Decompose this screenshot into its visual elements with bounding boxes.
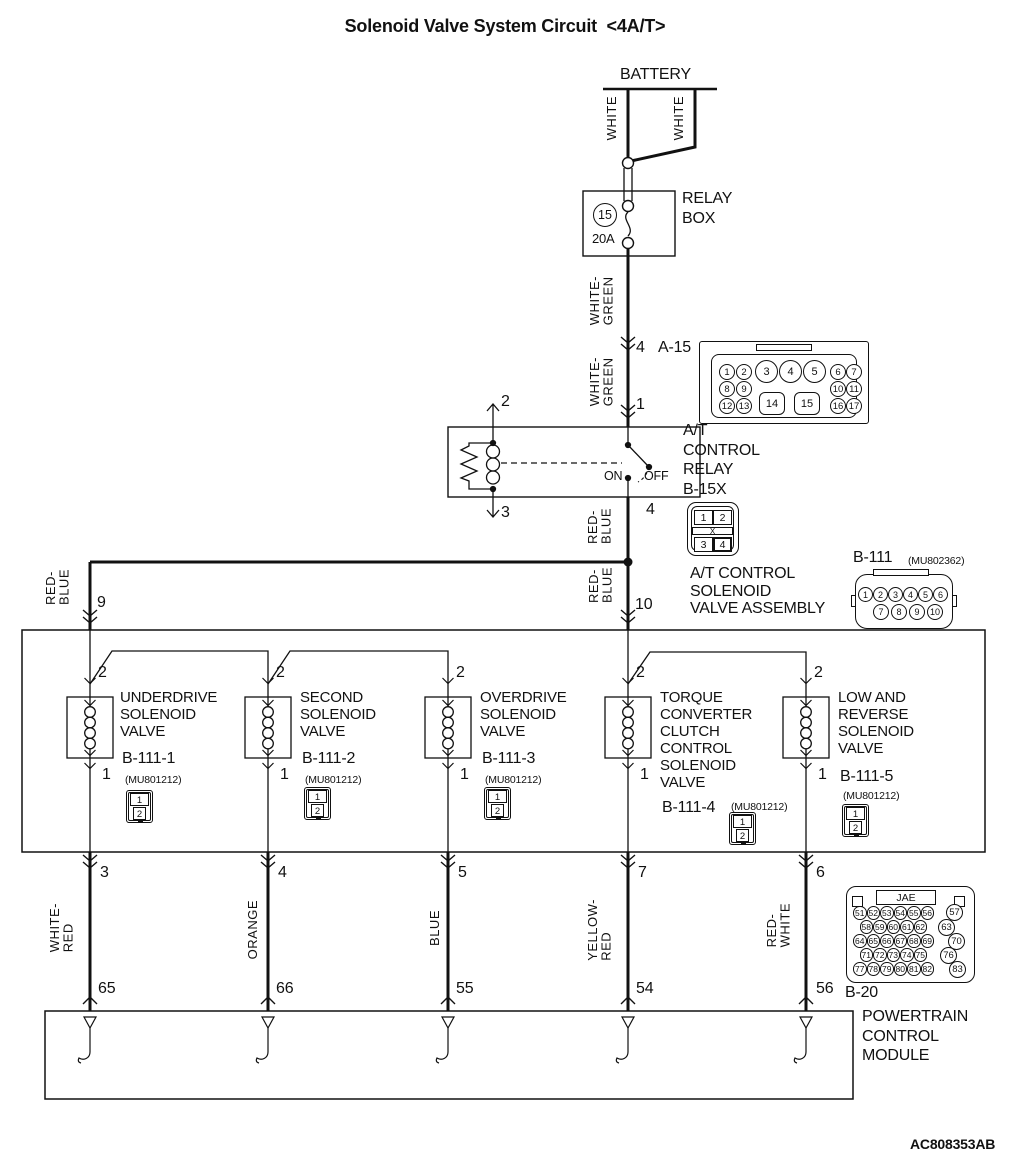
pin-number: 13 — [736, 398, 752, 414]
valve-name-second: SECOND SOLENOID VALVE — [300, 689, 376, 740]
pin-label: 1 — [818, 766, 827, 784]
pin-label: 5 — [458, 864, 467, 882]
pin-number: 10 — [927, 604, 943, 620]
pin-number: 72 — [873, 948, 887, 962]
fuse-rating: 20A — [592, 231, 615, 246]
at-relay-label: A/T CONTROL RELAY B-15X — [683, 421, 760, 499]
pin-number: 52 — [867, 906, 881, 920]
relay-on-label: ON — [604, 469, 622, 483]
at-control-relay-graphic — [448, 404, 700, 517]
pin-number: 5 — [918, 587, 933, 602]
pin-number: 1 — [858, 587, 873, 602]
pcm-graphic — [45, 1011, 853, 1099]
battery-wires — [603, 89, 717, 161]
pin-number: 4 — [779, 360, 802, 383]
valve-name-low-reverse: LOW AND REVERSE SOLENOID VALVE — [838, 689, 914, 757]
pin-label: 3 — [100, 864, 109, 882]
doc-code: AC808353AB — [910, 1136, 995, 1153]
valve-code: B-111-4 — [662, 799, 715, 817]
valve-part-number: (MU801212) — [125, 774, 181, 786]
valve-part-number: (MU801212) — [485, 774, 541, 786]
wire-color-label-red-white: RED- WHITE — [765, 903, 792, 947]
valve-name-underdrive: UNDERDRIVE SOLENOID VALVE — [120, 689, 217, 740]
wire-color-label-red-blue-2: RED- BLUE — [587, 567, 614, 603]
pin-label: 2 — [814, 664, 823, 682]
pin-number: 74 — [900, 948, 914, 962]
pin-number: 53 — [880, 906, 894, 920]
pin-number: 11 — [846, 381, 862, 397]
pin-number: 6 — [830, 364, 846, 380]
pin-number: 51 — [853, 906, 867, 920]
valve-code: B-111-2 — [302, 750, 355, 768]
pin-label-relay-coil-bottom: 3 — [501, 504, 510, 522]
pin-number: 58 — [860, 920, 874, 934]
pin-label: 2 — [456, 664, 465, 682]
pin-number: 64 — [853, 934, 867, 948]
valve-mini-connector: 1 2 — [304, 787, 331, 820]
pin-label-relay-in: 1 — [636, 396, 645, 414]
pin-number: 5 — [803, 360, 826, 383]
wire-color-label-blue: BLUE — [428, 910, 442, 946]
pin-number: 1 — [733, 815, 752, 828]
relay-box-label: RELAY BOX — [682, 189, 732, 228]
wire-color-label-orange: ORANGE — [246, 900, 260, 959]
pin-number: 2 — [133, 807, 146, 820]
a15-connector: 1 2 3 4 5 6 7 8 9 10 11 12 13 14 15 16 1… — [699, 341, 869, 424]
pin-label-assembly-left: 9 — [97, 594, 106, 612]
pin-number: 1 — [308, 790, 327, 803]
pin-number: 2 — [311, 804, 324, 817]
wire-color-label-white-right: WHITE — [672, 96, 686, 140]
mini-tick — [854, 834, 859, 837]
valve-mini-connector: 1 2 — [729, 812, 756, 845]
connector-name-a15: A-15 — [658, 339, 691, 357]
pin-label-relay-out: 4 — [646, 501, 655, 519]
pin-number: 83 — [949, 961, 966, 978]
pin-number: 77 — [853, 962, 867, 976]
pin-number: 69 — [921, 934, 935, 948]
pin-number: 1 — [488, 790, 507, 803]
pin-number: 4 — [903, 587, 918, 602]
pin-label: 2 — [636, 664, 645, 682]
pin-number: 67 — [894, 934, 908, 948]
pin-number: 71 — [860, 948, 874, 962]
b111-nub-right — [952, 595, 957, 607]
mini-tick — [138, 820, 143, 823]
pin-number: 7 — [846, 364, 862, 380]
pin-number: 9 — [909, 604, 925, 620]
relay-off-label: OFF — [644, 469, 668, 483]
pin-number: 60 — [887, 920, 901, 934]
pin-label: 56 — [816, 980, 833, 998]
mini-tick — [316, 817, 321, 820]
pin-label: 1 — [640, 766, 649, 784]
battery-label: BATTERY — [620, 66, 691, 84]
b20-pin-row: 7172737475 — [860, 948, 928, 962]
connector-name-b20: B-20 — [845, 984, 878, 1002]
valve-code: B-111-1 — [122, 750, 175, 768]
connector-name-b111: B-111 — [853, 549, 892, 567]
pin-number: 82 — [921, 962, 935, 976]
valve-code: B-111-5 — [840, 768, 893, 786]
pin-number: 81 — [907, 962, 921, 976]
pin-label: 2 — [276, 664, 285, 682]
pin-number: 14 — [759, 392, 785, 415]
pin-number: 1 — [719, 364, 735, 380]
valve-mini-connector: 1 2 — [126, 790, 153, 823]
pin-number: 3 — [694, 537, 713, 552]
b20-pin-row: 515253545556 — [853, 906, 934, 920]
pin-number: 8 — [719, 381, 735, 397]
pin-number: 2 — [736, 829, 749, 842]
wire-color-label-white-left: WHITE — [605, 96, 619, 140]
output-wires — [90, 852, 806, 1011]
pin-number: 6 — [933, 587, 948, 602]
wire-color-label-white-green-2: WHITE- GREEN — [588, 357, 615, 406]
red-blue-wires — [90, 497, 633, 630]
pin-number: 68 — [907, 934, 921, 948]
pin-number: 7 — [873, 604, 889, 620]
pin-label: 55 — [456, 980, 473, 998]
pin-label-assembly-right: 10 — [635, 596, 652, 614]
pin-label: 1 — [460, 766, 469, 784]
b20-connector: JAE 515253545556 5859606162 646566676869… — [846, 886, 975, 983]
b20-pin-row: 5859606162 — [860, 920, 928, 934]
pin-number: 8 — [891, 604, 907, 620]
b20-pin-row: 777879808182 — [853, 962, 934, 976]
pin-number: 54 — [894, 906, 908, 920]
valve-mini-connector: 1 2 — [842, 804, 869, 837]
pin-number: 79 — [880, 962, 894, 976]
pin-number: 62 — [914, 920, 928, 934]
pin-number: 66 — [880, 934, 894, 948]
pin-number: 55 — [907, 906, 921, 920]
valve-mini-connector: 1 2 — [484, 787, 511, 820]
b111-nub-left — [851, 595, 856, 607]
wire-color-label-red-blue-1: RED- BLUE — [586, 508, 613, 544]
pin-label-a15-wire: 4 — [636, 339, 645, 357]
pin-number: 1 — [694, 510, 713, 525]
valve-code: B-111-3 — [482, 750, 535, 768]
pin-label: 4 — [278, 864, 287, 882]
b111-connector: 1 2 3 4 5 6 7 8 9 10 — [855, 574, 953, 629]
pin-number: 3 — [888, 587, 903, 602]
pin-label: 7 — [638, 864, 647, 882]
pin-number: 2 — [736, 364, 752, 380]
pin-number: 16 — [830, 398, 846, 414]
wire-color-label-yellow-red: YELLOW- RED — [586, 899, 613, 961]
pin-number: 2 — [873, 587, 888, 602]
pin-number: 17 — [846, 398, 862, 414]
pin-number: 75 — [914, 948, 928, 962]
valve-name-tcc: TORQUE CONVERTER CLUTCH CONTROL SOLENOID… — [660, 689, 752, 791]
pin-number: 3 — [755, 360, 778, 383]
pin-label: 66 — [276, 980, 293, 998]
pin-label: 1 — [280, 766, 289, 784]
pin-number: 10 — [830, 381, 846, 397]
pin-number: 59 — [873, 920, 887, 934]
pin-number: 2 — [849, 821, 862, 834]
wiring-diagram-page: Solenoid Valve System Circuit <4A/T> AC8… — [0, 0, 1010, 1168]
pin-label: 2 — [98, 664, 107, 682]
pin-label: 54 — [636, 980, 653, 998]
pin-number: 1 — [846, 807, 865, 820]
pin-number: 2 — [491, 804, 504, 817]
pin-number: 78 — [867, 962, 881, 976]
pin-number: 12 — [719, 398, 735, 414]
mini-tick — [741, 842, 746, 845]
b111-tab — [873, 569, 929, 576]
pin-number: 80 — [894, 962, 908, 976]
pin-number: 15 — [794, 392, 820, 415]
mini-tick — [496, 817, 501, 820]
pin-number: 2 — [713, 510, 732, 525]
pin-number: 1 — [130, 793, 149, 806]
pin-label: 1 — [102, 766, 111, 784]
valve-name-overdrive: OVERDRIVE SOLENOID VALVE — [480, 689, 567, 740]
valve-part-number: (MU801212) — [843, 790, 899, 802]
wire-color-label-red-blue-3: RED- BLUE — [44, 569, 71, 605]
b15x-center-key: X — [692, 527, 733, 535]
a15-tab — [756, 344, 812, 351]
pin-number: 9 — [736, 381, 752, 397]
wire-color-label-white-green-1: WHITE- GREEN — [588, 276, 615, 325]
pin-number: 61 — [900, 920, 914, 934]
b15x-connector: 1 2 X 3 4 — [687, 502, 739, 556]
b20-pin-row: 646566676869 — [853, 934, 934, 948]
pin-label: 6 — [816, 864, 825, 882]
pin-label-relay-coil-top: 2 — [501, 393, 510, 411]
wire-color-label-white-red: WHITE- RED — [48, 903, 75, 952]
b111-part-number: (MU802362) — [908, 555, 964, 567]
fuse-number-badge: 15 — [593, 203, 617, 227]
pin-label: 65 — [98, 980, 115, 998]
page-title: Solenoid Valve System Circuit <4A/T> — [0, 18, 1010, 35]
b20-maker-label: JAE — [876, 890, 936, 905]
valve-part-number: (MU801212) — [305, 774, 361, 786]
pin-number: 4 — [713, 537, 732, 552]
pin-number: 56 — [921, 906, 935, 920]
pcm-label: POWERTRAIN CONTROL MODULE — [862, 1007, 968, 1066]
pin-number: 65 — [867, 934, 881, 948]
pin-number: 73 — [887, 948, 901, 962]
assembly-label: A/T CONTROL SOLENOID VALVE ASSEMBLY — [690, 565, 825, 618]
